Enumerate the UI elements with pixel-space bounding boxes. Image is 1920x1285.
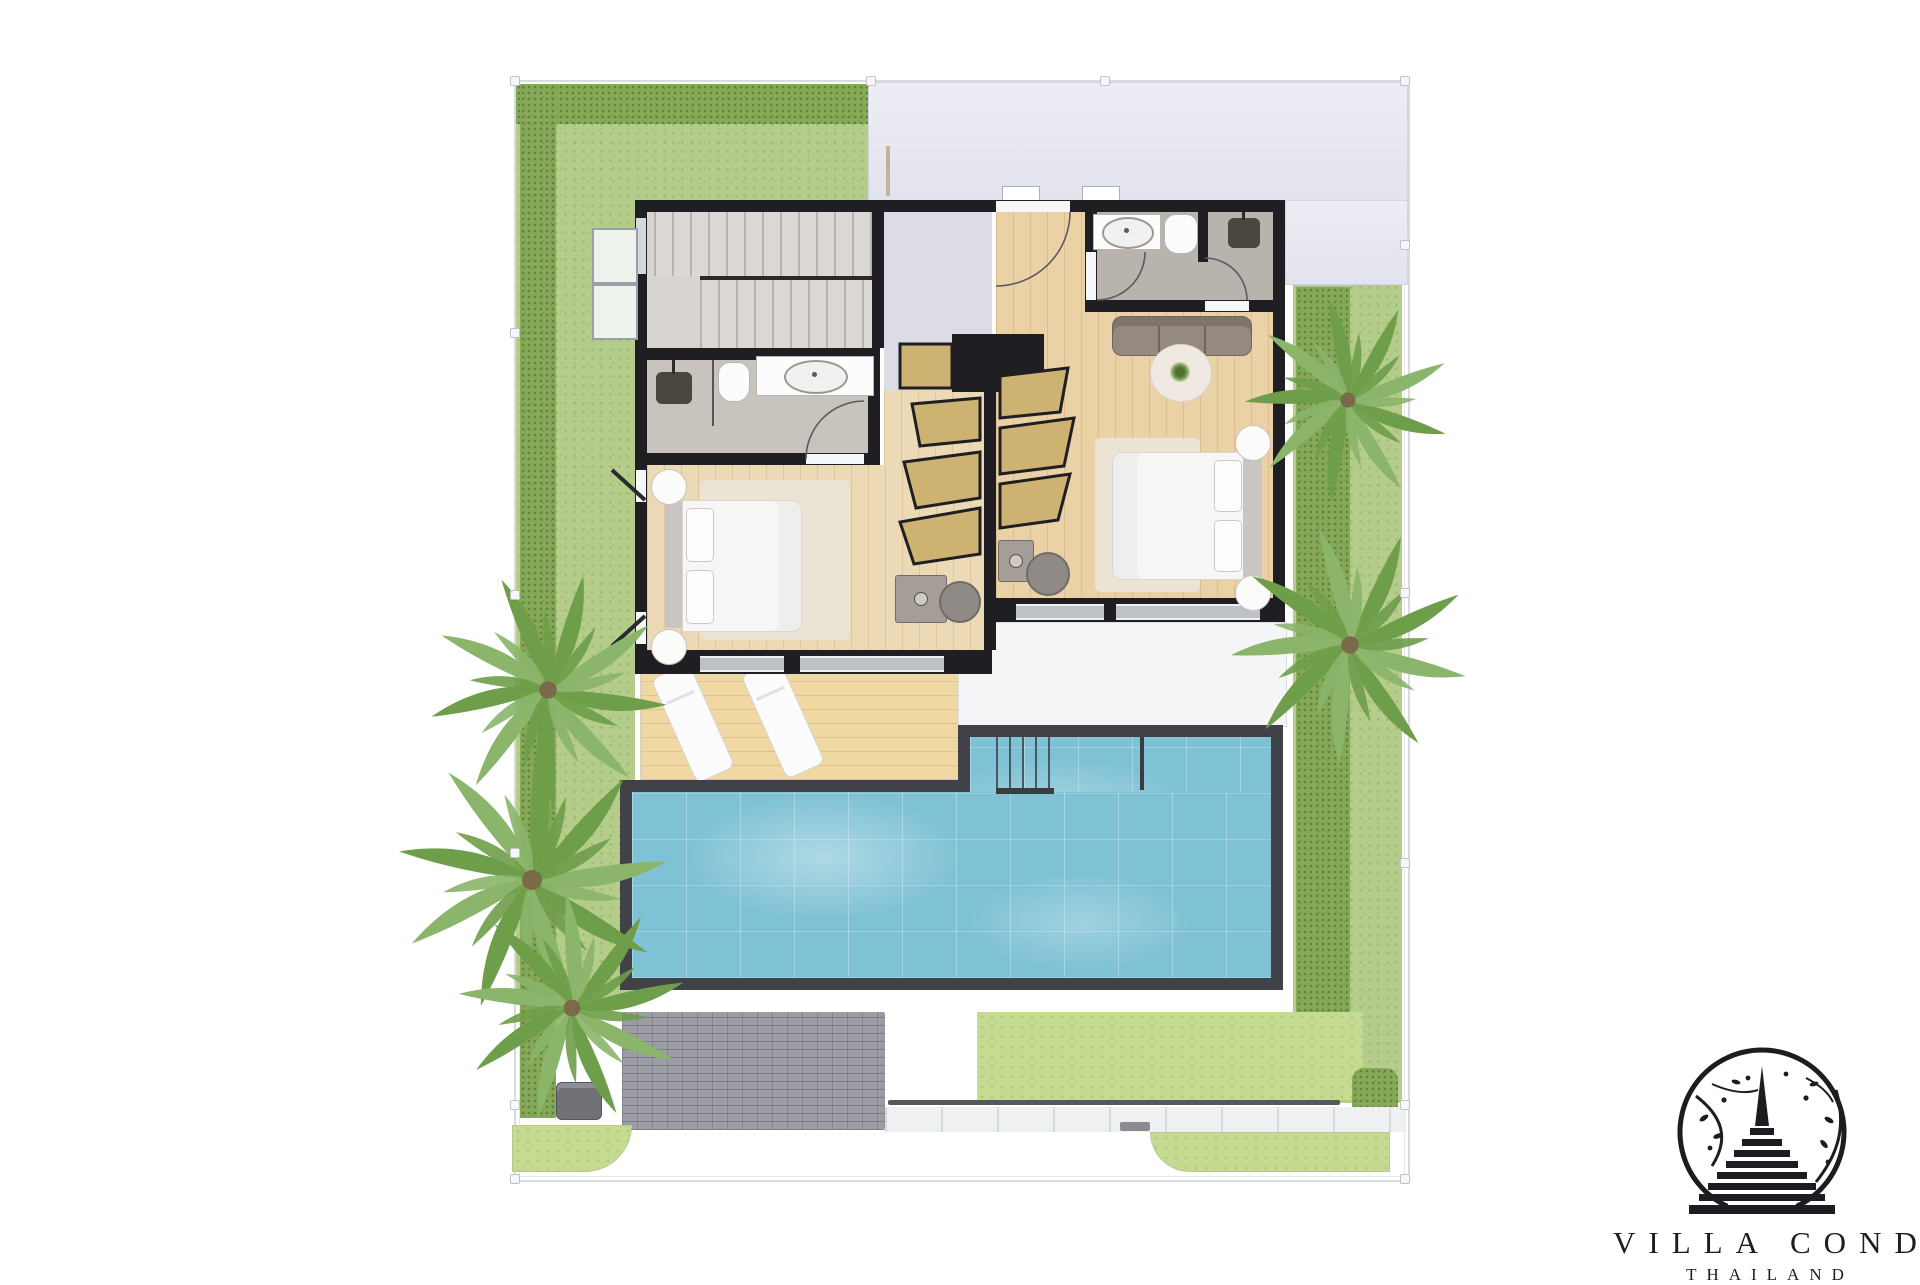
clothes-rack-item	[1000, 418, 1074, 474]
palm-tree-right-1	[1228, 282, 1469, 522]
wardrobe-rack-right	[1000, 368, 1074, 528]
palm-tree-left-2	[354, 706, 709, 1060]
emblem-stupa	[1689, 1066, 1835, 1214]
stupa-emblem-icon	[1600, 1040, 1920, 1225]
fence-post	[866, 76, 876, 86]
palm-tree-left-1	[431, 576, 667, 810]
fence-post	[510, 1174, 520, 1184]
wardrobe-rack-left	[900, 398, 980, 564]
palm-tree-right-2	[1183, 481, 1515, 813]
bedroom-2-door-arc	[996, 212, 1070, 286]
fence-post	[1400, 240, 1410, 250]
logo-title: VILLA CONDO	[1600, 1225, 1920, 1261]
bathroom-1-door-arc	[806, 401, 864, 459]
fence-post	[510, 76, 520, 86]
open-shutter-leaves	[612, 470, 645, 646]
clothes-rack-item	[904, 452, 980, 508]
fence-post	[510, 328, 520, 338]
fence-post	[510, 1100, 520, 1110]
clothes-rack-item	[900, 508, 980, 564]
closet-shelf	[900, 344, 952, 388]
clothes-rack-item	[912, 398, 980, 446]
fence-post	[1400, 76, 1410, 86]
door-swing-arcs	[806, 212, 1247, 459]
fence-post	[510, 848, 520, 858]
fence-post	[1100, 76, 1110, 86]
fence-post	[1400, 1100, 1410, 1110]
shutter-leaf-1	[612, 470, 645, 500]
clothes-rack-item	[1000, 474, 1070, 528]
clothes-rack-item	[1000, 368, 1068, 418]
bathroom-2-door-arc	[1097, 252, 1145, 300]
floor-plan-canvas: { "canvas": { "width": 1920, "height": 1…	[0, 0, 1920, 1280]
fence-post	[1400, 858, 1410, 868]
shower-2-door-arc	[1205, 258, 1247, 300]
fence-post	[1400, 588, 1410, 598]
fence-post	[510, 590, 520, 600]
fence-post	[1400, 1174, 1410, 1184]
logo-subtitle: THAILAND	[1600, 1265, 1920, 1285]
brand-logo: VILLA CONDO THAILAND	[1600, 1040, 1920, 1280]
